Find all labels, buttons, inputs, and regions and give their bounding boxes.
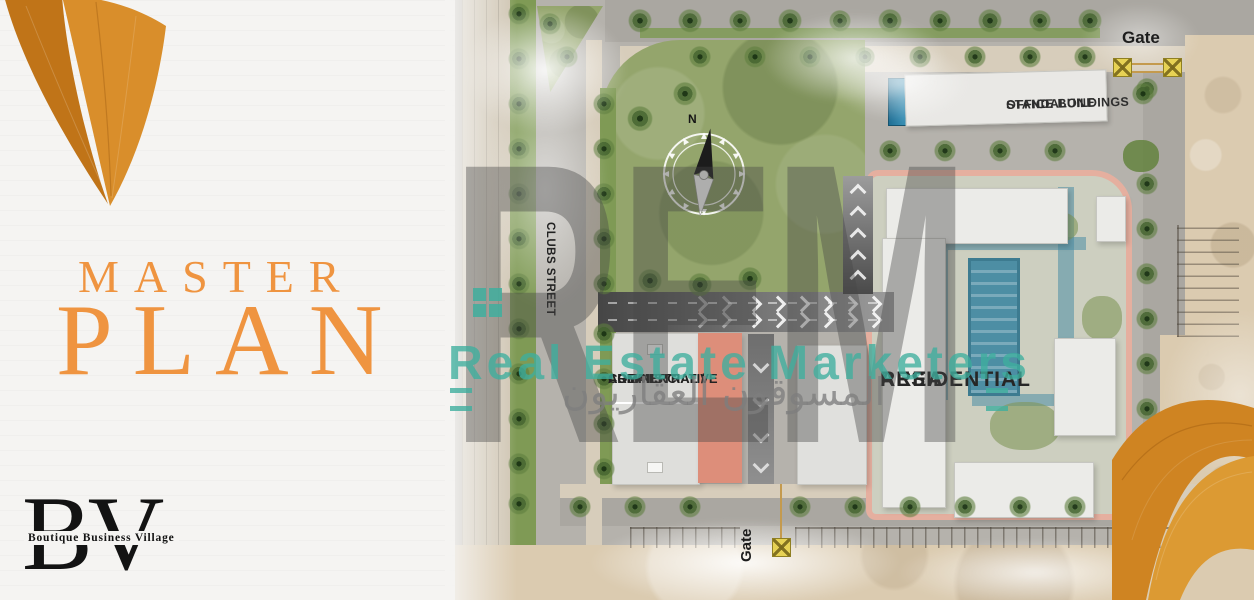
- palm-tree-icon: [688, 46, 712, 70]
- palm-tree-icon: [507, 363, 531, 387]
- palm-tree-icon: [977, 9, 1003, 35]
- palm-tree-icon: [963, 46, 987, 70]
- chevron-road-marking: [753, 427, 770, 444]
- palm-tree-icon: [507, 318, 531, 342]
- palm-tree-icon: [1073, 46, 1097, 70]
- palm-tree-icon: [507, 138, 531, 162]
- chevron-road-marking: [842, 312, 859, 329]
- master-plan-graphic: COMMERCIAL / ADMINISTRATIVE AREA RESIDEN…: [0, 0, 1254, 600]
- palm-tree-icon: [507, 273, 531, 297]
- gate-top-marker-left: [1113, 58, 1132, 77]
- palm-tree-icon: [677, 9, 703, 35]
- palm-tree-icon: [507, 3, 531, 27]
- chevron-road-marking: [866, 312, 883, 329]
- palm-tree-icon: [828, 10, 852, 34]
- parking-row-bottom-left: [630, 527, 740, 548]
- palm-tree-icon: [1077, 9, 1103, 35]
- palm-tree-icon: [623, 496, 647, 520]
- palm-tree-icon: [592, 183, 616, 207]
- gate-bottom-label: Gate: [738, 529, 755, 562]
- palm-tree-icon: [592, 458, 616, 482]
- gate-bottom-marker: [772, 538, 791, 557]
- palm-tree-icon: [627, 9, 653, 35]
- commercial-area-label-line3: AREA: [608, 370, 645, 388]
- palm-tree-icon: [728, 10, 752, 34]
- chevron-road-marking: [746, 296, 763, 313]
- chevron-road-marking: [753, 392, 770, 409]
- chevron-road-marking: [794, 312, 811, 329]
- commercial-building-gray: [612, 333, 700, 485]
- roof-unit: [647, 344, 663, 355]
- chevron-road-marking: [746, 312, 763, 329]
- mid-gray-building: [797, 345, 867, 485]
- palm-tree-icon: [672, 82, 698, 108]
- palm-tree-icon: [928, 10, 952, 34]
- palm-tree-icon: [878, 140, 902, 164]
- palm-tree-icon: [637, 269, 663, 295]
- compass-north-label: N: [688, 112, 697, 126]
- palm-tree-icon: [777, 9, 803, 35]
- palm-tree-icon: [592, 138, 616, 162]
- leaf-decoration-top-left-icon: [0, 0, 186, 216]
- chevron-road-marking: [866, 296, 883, 313]
- left-panel: MASTER PLAN BV Boutique Business Village: [0, 0, 455, 600]
- palm-tree-icon: [843, 496, 867, 520]
- palm-tree-icon: [592, 323, 616, 347]
- chevron-road-marking: [770, 312, 787, 329]
- palm-tree-icon: [854, 47, 876, 69]
- residential-area-label-line2: AREA: [880, 366, 944, 393]
- gate-top-marker-right: [1163, 58, 1182, 77]
- palm-tree-icon: [1008, 496, 1032, 520]
- chevron-road-marking: [818, 296, 835, 313]
- bv-logo: BV Boutique Business Village: [22, 484, 237, 596]
- palm-tree-icon: [507, 493, 531, 517]
- palm-tree-icon: [898, 496, 922, 520]
- chevron-road-marking: [716, 296, 733, 313]
- chevron-road-marking: [716, 312, 733, 329]
- palm-tree-icon: [1063, 496, 1087, 520]
- palm-tree-icon: [1043, 140, 1067, 164]
- palm-tree-icon: [507, 48, 531, 72]
- landscape-green: [1082, 296, 1122, 340]
- entrance-ramp-vertical: [843, 176, 873, 294]
- palm-tree-icon: [788, 496, 812, 520]
- palm-tree-icon: [507, 183, 531, 207]
- palm-tree-icon: [988, 140, 1012, 164]
- palm-tree-icon: [678, 496, 702, 520]
- entrance-ramp-horizontal: [598, 292, 894, 332]
- palm-tree-icon: [877, 9, 903, 35]
- palm-tree-icon: [568, 496, 592, 520]
- page-title-plan: PLAN: [56, 290, 402, 392]
- clubs-street-label: CLUBS STREET: [544, 222, 556, 316]
- palm-tree-icon: [687, 273, 713, 299]
- palm-tree-icon: [908, 46, 932, 70]
- residential-building-small: [1096, 196, 1126, 242]
- palm-tree-icon: [1135, 353, 1159, 377]
- compass-icon: [648, 112, 760, 224]
- chevron-road-marking: [850, 228, 867, 245]
- palm-tree-icon: [1028, 10, 1052, 34]
- chevron-road-marking: [850, 184, 867, 201]
- palm-tree-icon: [592, 228, 616, 252]
- residential-building-top: [886, 188, 1068, 244]
- chevron-road-marking: [850, 250, 867, 267]
- gate-bottom-barrier: [780, 484, 782, 538]
- palm-tree-icon: [538, 13, 562, 37]
- chevron-road-marking: [794, 296, 811, 313]
- chevron-road-marking: [692, 312, 709, 329]
- residential-building-right: [1054, 338, 1116, 436]
- gate-top-barrier: [1131, 63, 1163, 65]
- standalone-office-building: STANDALONE OFFICE BUILDINGS: [904, 69, 1107, 126]
- roof-unit: [647, 462, 663, 473]
- roof-line: [613, 402, 699, 404]
- chevron-road-marking: [753, 357, 770, 374]
- palm-tree-icon: [737, 267, 763, 293]
- chevron-road-marking: [753, 457, 770, 474]
- chevron-road-marking: [842, 296, 859, 313]
- palm-tree-icon: [1135, 263, 1159, 287]
- parking-row-right: [1177, 225, 1239, 337]
- palm-tree-icon: [743, 46, 767, 70]
- bv-logo-subtitle: Boutique Business Village: [24, 531, 179, 545]
- palm-tree-icon: [592, 413, 616, 437]
- palm-tree-icon: [507, 408, 531, 432]
- gate-top-barrier: [1131, 71, 1163, 73]
- leaf-decoration-bottom-right-icon: [1112, 390, 1254, 600]
- chevron-road-marking: [818, 312, 835, 329]
- palm-tree-icon: [555, 46, 579, 70]
- palm-tree-icon: [1135, 218, 1159, 242]
- clubs-street-parking-lane: [462, 0, 510, 545]
- landscape-green: [990, 402, 1060, 450]
- palm-tree-icon: [1135, 173, 1159, 197]
- palm-tree-icon: [798, 46, 822, 70]
- palm-tree-icon: [933, 140, 957, 164]
- chevron-road-marking: [850, 270, 867, 287]
- roundabout-green: [1123, 140, 1159, 172]
- chevron-road-marking: [850, 206, 867, 223]
- palm-tree-icon: [592, 93, 616, 117]
- palm-tree-icon: [1018, 46, 1042, 70]
- standalone-office-label-line2: OFFICE BUILDINGS: [1006, 95, 1129, 114]
- gate-access-road: [748, 334, 774, 484]
- palm-tree-icon: [1131, 83, 1155, 107]
- commercial-building-salmon: [698, 333, 742, 483]
- palm-tree-icon: [953, 496, 977, 520]
- residential-block: [866, 170, 1132, 520]
- gate-top-label: Gate: [1122, 28, 1160, 48]
- palm-tree-icon: [507, 228, 531, 252]
- palm-tree-icon: [507, 93, 531, 117]
- palm-tree-icon: [507, 453, 531, 477]
- palm-tree-icon: [592, 273, 616, 297]
- chevron-road-marking: [770, 296, 787, 313]
- palm-tree-icon: [1135, 308, 1159, 332]
